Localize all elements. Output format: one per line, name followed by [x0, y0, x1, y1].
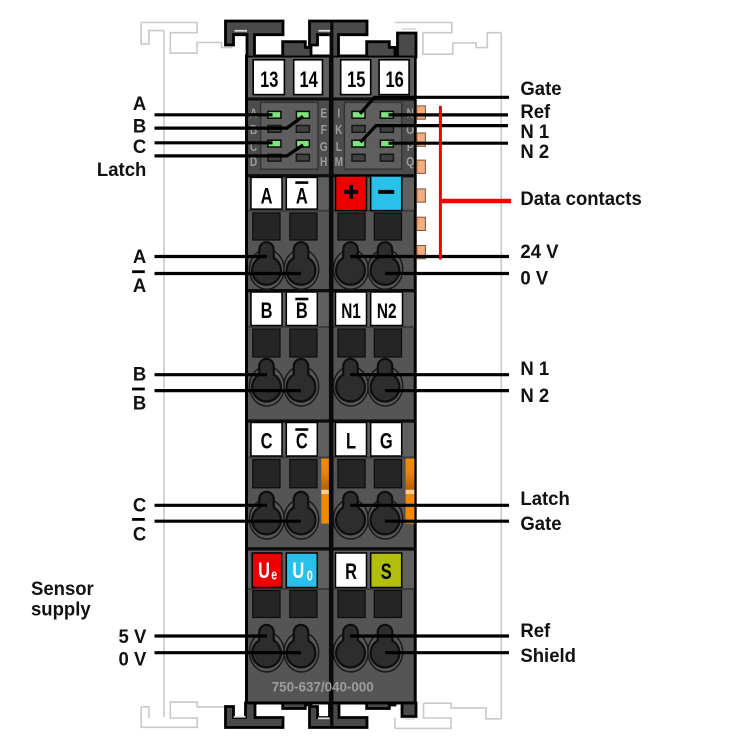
svg-text:N 1: N 1: [520, 359, 549, 381]
svg-text:Shield: Shield: [520, 646, 576, 668]
svg-text:U: U: [292, 559, 304, 584]
svg-text:0 V: 0 V: [119, 649, 147, 671]
svg-text:14: 14: [299, 67, 317, 92]
svg-text:F: F: [321, 123, 327, 137]
svg-text:Latch: Latch: [520, 489, 569, 511]
svg-text:B: B: [296, 299, 308, 324]
svg-text:M: M: [335, 155, 343, 169]
svg-text:supply: supply: [31, 599, 91, 621]
svg-text:0 V: 0 V: [520, 268, 548, 290]
svg-text:15: 15: [347, 67, 365, 92]
svg-text:Latch: Latch: [97, 160, 146, 182]
svg-text:B: B: [133, 116, 146, 138]
svg-text:C: C: [133, 495, 147, 517]
svg-text:K: K: [335, 123, 343, 137]
svg-text:B: B: [133, 364, 146, 386]
svg-text:A: A: [296, 184, 308, 209]
svg-text:Gate: Gate: [520, 78, 561, 100]
svg-text:Q: Q: [406, 155, 414, 169]
svg-text:C: C: [261, 429, 273, 454]
svg-text:Sensor: Sensor: [31, 579, 94, 601]
svg-text:C: C: [296, 429, 308, 454]
svg-text:I: I: [337, 106, 340, 120]
svg-text:N 1: N 1: [520, 121, 549, 143]
svg-text:B: B: [133, 393, 146, 415]
svg-text:A: A: [133, 275, 147, 297]
svg-text:S: S: [381, 560, 392, 585]
svg-text:Ref: Ref: [520, 621, 550, 643]
svg-text:5 V: 5 V: [119, 626, 147, 648]
svg-text:N 2: N 2: [520, 141, 549, 163]
svg-text:L: L: [346, 429, 356, 454]
svg-text:Ref: Ref: [520, 101, 550, 123]
svg-text:C: C: [133, 524, 147, 546]
svg-text:H: H: [320, 155, 327, 169]
svg-text:A: A: [261, 184, 273, 209]
svg-text:L: L: [336, 140, 342, 154]
svg-text:N1: N1: [341, 299, 361, 323]
svg-text:N2: N2: [377, 299, 397, 323]
svg-text:C: C: [133, 137, 147, 159]
svg-text:0: 0: [307, 568, 313, 584]
svg-text:A: A: [133, 246, 147, 268]
svg-text:G: G: [380, 429, 393, 454]
svg-text:Data contacts: Data contacts: [520, 189, 641, 211]
svg-text:24 V: 24 V: [520, 242, 558, 264]
svg-text:13: 13: [260, 67, 278, 92]
svg-text:A: A: [133, 94, 147, 116]
svg-text:750-637/040-000: 750-637/040-000: [272, 679, 374, 694]
svg-text:B: B: [261, 299, 273, 324]
svg-text:N 2: N 2: [520, 385, 549, 407]
svg-text:Gate: Gate: [520, 514, 561, 536]
svg-text:G: G: [320, 140, 328, 154]
svg-text:R: R: [345, 560, 357, 585]
svg-text:B: B: [250, 123, 257, 137]
svg-text:E: E: [320, 106, 327, 120]
svg-text:e: e: [271, 567, 277, 583]
svg-text:16: 16: [385, 67, 403, 92]
svg-text:U: U: [258, 559, 270, 584]
